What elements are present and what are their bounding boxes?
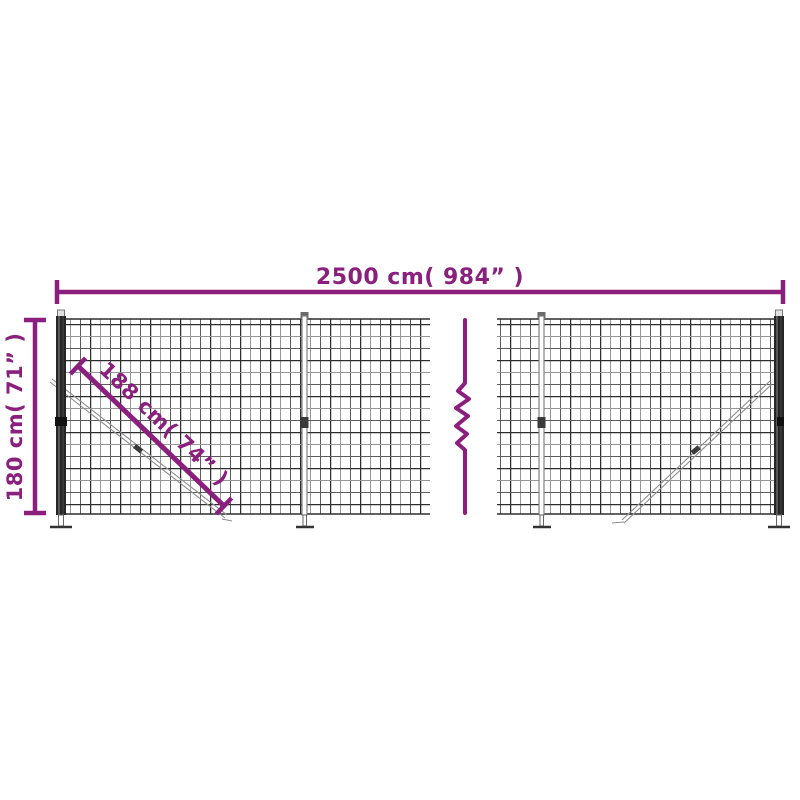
post-body [302,316,307,515]
post-clamp [55,417,67,426]
post-foot [540,515,544,526]
post-body [774,316,784,515]
height-label: 180 cm( 71” ) [3,333,27,502]
fence-dimension-diagram: 2500 cm( 984” ) 180 cm( 71” ) 188 cm( 74… [0,0,800,800]
mesh-grid-left [62,319,430,514]
fence-dimension-diagram-page: 2500 cm( 984” ) 180 cm( 71” ) 188 cm( 74… [0,0,800,800]
total-width-label: 2500 cm( 984” ) [316,265,524,290]
dimension-height: 180 cm( 71” ) [3,320,46,513]
post-foot [303,515,307,526]
post-body [539,316,544,515]
post-cap [58,310,65,317]
post-body [56,316,66,515]
post-foot [777,515,782,526]
post-cap [776,310,783,317]
post-clamp [777,417,784,426]
post-clamp [301,417,309,428]
break-line-symbol [456,320,469,513]
post-foot [59,515,64,526]
dimension-total-width: 2500 cm( 984” ) [57,265,783,304]
mesh-panel-left [62,319,430,514]
post-clamp [538,417,546,428]
